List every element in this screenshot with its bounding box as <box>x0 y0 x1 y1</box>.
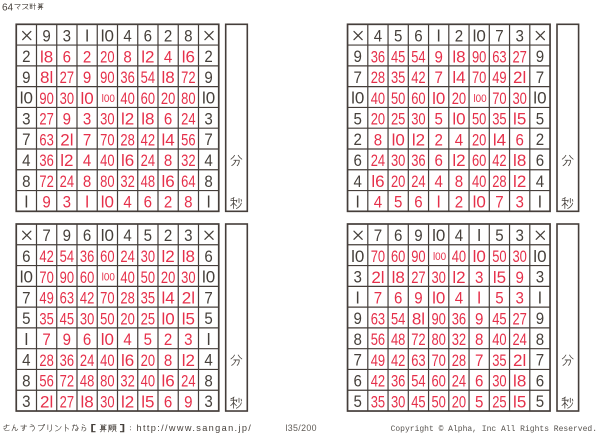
svg-text:63: 63 <box>371 309 385 328</box>
svg-text:7: 7 <box>22 288 30 307</box>
svg-text:27: 27 <box>60 68 74 87</box>
svg-text:35: 35 <box>492 110 506 129</box>
svg-text:50: 50 <box>472 110 486 129</box>
svg-text:9: 9 <box>515 268 523 287</box>
svg-text:63: 63 <box>492 47 506 66</box>
svg-text:4: 4 <box>455 226 463 245</box>
svg-text:35: 35 <box>391 68 405 87</box>
svg-text:l6: l6 <box>162 372 175 391</box>
svg-text:80: 80 <box>181 89 195 108</box>
svg-text:4: 4 <box>22 351 30 370</box>
svg-text:7: 7 <box>536 68 544 87</box>
svg-text:2: 2 <box>164 330 172 349</box>
svg-text:l0: l0 <box>20 89 33 108</box>
svg-text:90: 90 <box>60 268 74 287</box>
svg-text:56: 56 <box>371 330 385 349</box>
svg-text:36: 36 <box>120 68 134 87</box>
svg-text:40: 40 <box>492 330 506 349</box>
svg-text:20: 20 <box>141 351 155 370</box>
svg-text:6: 6 <box>434 151 442 170</box>
svg-text:35: 35 <box>39 309 53 328</box>
svg-text:l0: l0 <box>162 309 175 328</box>
svg-text:40: 40 <box>120 89 134 108</box>
svg-text:20: 20 <box>161 89 175 108</box>
svg-text:8: 8 <box>353 330 361 349</box>
svg-text:50: 50 <box>391 89 405 108</box>
svg-text:28: 28 <box>452 351 466 370</box>
svg-text:70: 70 <box>472 68 486 87</box>
svg-text:l: l <box>24 330 28 349</box>
svg-text:48: 48 <box>391 330 405 349</box>
svg-text:40: 40 <box>371 89 385 108</box>
svg-text:9: 9 <box>184 392 192 411</box>
svg-text:6: 6 <box>515 130 523 149</box>
svg-text:l0: l0 <box>533 89 546 108</box>
svg-text:90: 90 <box>411 247 425 266</box>
svg-text:6: 6 <box>164 392 172 411</box>
svg-text:7: 7 <box>22 130 30 149</box>
svg-text:l0: l0 <box>202 268 215 287</box>
svg-text:4: 4 <box>164 47 172 66</box>
svg-text:4: 4 <box>204 351 212 370</box>
svg-text:3: 3 <box>475 268 483 287</box>
svg-text:l00: l00 <box>473 93 486 105</box>
svg-text:30: 30 <box>411 110 425 129</box>
svg-text:30: 30 <box>492 372 506 391</box>
svg-text:7: 7 <box>42 330 50 349</box>
svg-text:l5: l5 <box>141 392 154 411</box>
svg-text:20: 20 <box>100 47 114 66</box>
svg-text:54: 54 <box>60 247 74 266</box>
svg-text:45: 45 <box>60 309 74 328</box>
svg-text:l0: l0 <box>392 130 405 149</box>
svg-text:5: 5 <box>434 110 442 129</box>
svg-text:49: 49 <box>39 289 53 308</box>
svg-text:30: 30 <box>181 268 195 287</box>
svg-text:20: 20 <box>472 130 486 149</box>
svg-text:35: 35 <box>141 289 155 308</box>
svg-text:l4: l4 <box>452 68 465 87</box>
svg-text:27: 27 <box>512 47 526 66</box>
svg-text:3: 3 <box>536 268 544 287</box>
svg-text:25: 25 <box>141 309 155 328</box>
svg-text:4: 4 <box>123 226 131 245</box>
svg-text:l2: l2 <box>141 47 154 66</box>
svg-text:4: 4 <box>83 151 91 170</box>
svg-text:80: 80 <box>431 330 445 349</box>
svg-text:3: 3 <box>204 109 212 128</box>
svg-text:9: 9 <box>414 289 422 308</box>
svg-text:90: 90 <box>100 68 114 87</box>
svg-text:4: 4 <box>434 172 442 191</box>
svg-text:2: 2 <box>164 226 172 245</box>
svg-text:l6: l6 <box>121 151 134 170</box>
svg-text:l2: l2 <box>182 351 195 370</box>
svg-text:20: 20 <box>452 89 466 108</box>
svg-text:l6: l6 <box>162 172 175 191</box>
svg-text:4: 4 <box>455 130 463 149</box>
svg-text:l4: l4 <box>162 130 175 149</box>
svg-text:5: 5 <box>204 309 212 328</box>
svg-text:28: 28 <box>39 351 53 370</box>
svg-text:l8: l8 <box>392 268 405 287</box>
svg-text:l: l <box>538 193 542 212</box>
svg-text:42: 42 <box>80 289 94 308</box>
svg-text:3: 3 <box>22 392 30 411</box>
svg-text:60: 60 <box>431 372 445 391</box>
svg-text:9: 9 <box>536 47 544 66</box>
svg-text:8: 8 <box>22 371 30 390</box>
svg-text:l0: l0 <box>202 89 215 108</box>
svg-text:70: 70 <box>431 351 445 370</box>
svg-text:5: 5 <box>353 109 361 128</box>
svg-text:42: 42 <box>492 151 506 170</box>
svg-text:l2: l2 <box>452 151 465 170</box>
svg-text:l0: l0 <box>452 110 465 129</box>
svg-text:70: 70 <box>492 89 506 108</box>
svg-text:2: 2 <box>164 26 172 45</box>
svg-text:63: 63 <box>39 130 53 149</box>
svg-text:63: 63 <box>60 289 74 308</box>
svg-text:8: 8 <box>475 330 483 349</box>
svg-text:8: 8 <box>164 351 172 370</box>
svg-text:3: 3 <box>515 289 523 308</box>
svg-text:2l: 2l <box>371 268 384 287</box>
svg-text:l8: l8 <box>81 392 94 411</box>
svg-text:42: 42 <box>391 351 405 370</box>
svg-text:8l: 8l <box>40 68 53 87</box>
svg-text:40: 40 <box>100 151 114 170</box>
svg-text:2: 2 <box>204 47 212 66</box>
svg-text:7: 7 <box>353 351 361 370</box>
svg-text:3: 3 <box>515 193 523 212</box>
svg-text:60: 60 <box>100 247 114 266</box>
svg-text:7: 7 <box>434 68 442 87</box>
svg-text:6: 6 <box>353 151 361 170</box>
svg-text:70: 70 <box>100 289 114 308</box>
svg-text:24: 24 <box>80 351 94 370</box>
svg-text:Copyright © Alpha, Inc All Rig: Copyright © Alpha, Inc All Rights Reserv… <box>391 425 597 434</box>
svg-text:50: 50 <box>431 392 445 411</box>
svg-text:30: 30 <box>100 110 114 129</box>
svg-text:45: 45 <box>411 392 425 411</box>
svg-text:60: 60 <box>80 268 94 287</box>
svg-text:72: 72 <box>181 68 195 87</box>
svg-text:4: 4 <box>204 151 212 170</box>
svg-text:l00: l00 <box>433 251 446 263</box>
svg-text:3: 3 <box>22 109 30 128</box>
svg-text:5: 5 <box>495 226 503 245</box>
svg-text:http://www.sangan.jp/: http://www.sangan.jp/ <box>137 423 253 433</box>
svg-text:6: 6 <box>536 371 544 390</box>
svg-text:42: 42 <box>411 68 425 87</box>
svg-text:9: 9 <box>42 26 50 45</box>
svg-text:27: 27 <box>39 110 53 129</box>
svg-text:20: 20 <box>452 392 466 411</box>
svg-text:l6: l6 <box>182 47 195 66</box>
svg-text:4: 4 <box>123 330 131 349</box>
svg-text:7: 7 <box>204 288 212 307</box>
svg-text:5: 5 <box>394 193 402 212</box>
svg-text:3: 3 <box>63 26 71 45</box>
svg-text:3: 3 <box>63 193 71 212</box>
svg-text:3: 3 <box>83 110 91 129</box>
svg-text:4: 4 <box>123 193 131 212</box>
svg-text:2: 2 <box>455 193 463 212</box>
svg-text:l: l <box>85 26 89 45</box>
svg-text:5: 5 <box>394 26 402 45</box>
svg-text:2l: 2l <box>40 392 53 411</box>
svg-text:7: 7 <box>536 351 544 370</box>
svg-text:3: 3 <box>515 26 523 45</box>
svg-text:4: 4 <box>374 26 382 45</box>
svg-text:30: 30 <box>512 247 526 266</box>
svg-text:9: 9 <box>414 226 422 245</box>
svg-text:l0: l0 <box>351 247 364 266</box>
svg-text:90: 90 <box>39 89 53 108</box>
svg-text:l35/200: l35/200 <box>286 423 317 433</box>
svg-text:54: 54 <box>411 47 425 66</box>
svg-text:4: 4 <box>536 172 544 191</box>
svg-text:l0: l0 <box>473 26 486 45</box>
svg-text:l0: l0 <box>101 193 114 212</box>
svg-text:60: 60 <box>411 89 425 108</box>
svg-text:70: 70 <box>371 247 385 266</box>
svg-text:42: 42 <box>371 372 385 391</box>
svg-text:7: 7 <box>495 193 503 212</box>
svg-text:30: 30 <box>100 392 114 411</box>
svg-text:3: 3 <box>204 392 212 411</box>
svg-text:24: 24 <box>411 172 425 191</box>
svg-text:7: 7 <box>204 130 212 149</box>
svg-text:l8: l8 <box>452 47 465 66</box>
svg-text:l0: l0 <box>351 89 364 108</box>
svg-text:7: 7 <box>495 26 503 45</box>
svg-text:l0: l0 <box>101 226 114 245</box>
svg-text:l5: l5 <box>513 110 526 129</box>
svg-text:l00: l00 <box>102 93 115 105</box>
svg-text:l8: l8 <box>513 372 526 391</box>
svg-text:40: 40 <box>120 268 134 287</box>
svg-text:24: 24 <box>141 151 155 170</box>
svg-text:5: 5 <box>144 226 152 245</box>
svg-text:50: 50 <box>492 247 506 266</box>
svg-text:l0: l0 <box>432 89 445 108</box>
svg-text:48: 48 <box>80 372 94 391</box>
svg-text:40: 40 <box>100 351 114 370</box>
svg-text:5: 5 <box>495 289 503 308</box>
svg-text:l6: l6 <box>371 172 384 191</box>
svg-text:8: 8 <box>455 172 463 191</box>
svg-text:5: 5 <box>144 330 152 349</box>
svg-text:l0: l0 <box>101 330 114 349</box>
svg-text:7: 7 <box>83 130 91 149</box>
svg-text:72: 72 <box>60 372 74 391</box>
svg-text:70: 70 <box>100 130 114 149</box>
svg-text:9: 9 <box>42 193 50 212</box>
svg-text:30: 30 <box>60 89 74 108</box>
svg-text:l0: l0 <box>473 193 486 212</box>
svg-text:50: 50 <box>141 268 155 287</box>
svg-text:6: 6 <box>144 26 152 45</box>
svg-text:56: 56 <box>39 372 53 391</box>
svg-text:2l: 2l <box>182 289 195 308</box>
svg-text:l2: l2 <box>412 130 425 149</box>
svg-text:l: l <box>477 226 481 245</box>
svg-text:l0: l0 <box>432 289 445 308</box>
svg-text:8: 8 <box>536 330 544 349</box>
svg-text:28: 28 <box>492 172 506 191</box>
svg-text:l2: l2 <box>121 392 134 411</box>
svg-text:30: 30 <box>512 89 526 108</box>
svg-text:6: 6 <box>353 371 361 390</box>
svg-text:l: l <box>207 193 211 212</box>
svg-text:42: 42 <box>39 247 53 266</box>
svg-text:24: 24 <box>120 247 134 266</box>
svg-text:4: 4 <box>353 172 361 191</box>
svg-text:2: 2 <box>22 47 30 66</box>
svg-text:64: 64 <box>2 3 14 14</box>
svg-text:25: 25 <box>391 110 405 129</box>
svg-text:36: 36 <box>411 151 425 170</box>
svg-text:6: 6 <box>83 226 91 245</box>
svg-text:6: 6 <box>394 226 402 245</box>
svg-text:20: 20 <box>161 268 175 287</box>
svg-text:6: 6 <box>83 330 91 349</box>
svg-text:l5: l5 <box>493 268 506 287</box>
svg-text:24: 24 <box>371 151 385 170</box>
svg-text:6: 6 <box>414 193 422 212</box>
svg-text:l: l <box>437 26 441 45</box>
svg-text:30: 30 <box>141 247 155 266</box>
svg-text:2l: 2l <box>513 68 526 87</box>
svg-text:8: 8 <box>204 172 212 191</box>
svg-text:7: 7 <box>353 68 361 87</box>
svg-text:7: 7 <box>475 351 483 370</box>
svg-text:20: 20 <box>391 172 405 191</box>
svg-text:24: 24 <box>512 330 526 349</box>
svg-text:6: 6 <box>22 247 30 266</box>
svg-text:54: 54 <box>391 309 405 328</box>
svg-text:l8: l8 <box>182 247 195 266</box>
svg-text:2l: 2l <box>513 351 526 370</box>
svg-text:72: 72 <box>39 172 53 191</box>
svg-text:l: l <box>356 288 360 307</box>
svg-text:24: 24 <box>60 172 74 191</box>
svg-text:9: 9 <box>434 47 442 66</box>
svg-text:9: 9 <box>63 330 71 349</box>
svg-text:6: 6 <box>394 289 402 308</box>
svg-text:l2: l2 <box>121 110 134 129</box>
svg-text:6: 6 <box>204 247 212 266</box>
svg-text:3: 3 <box>184 330 192 349</box>
svg-text:l0: l0 <box>432 226 445 245</box>
svg-text:49: 49 <box>492 68 506 87</box>
svg-text:l4: l4 <box>162 289 175 308</box>
svg-text:9: 9 <box>475 309 483 328</box>
svg-text:36: 36 <box>452 309 466 328</box>
svg-text:45: 45 <box>391 47 405 66</box>
svg-text:64: 64 <box>181 172 195 191</box>
svg-text:90: 90 <box>472 47 486 66</box>
svg-text:4: 4 <box>123 26 131 45</box>
svg-text:32: 32 <box>120 372 134 391</box>
svg-text:72: 72 <box>411 330 425 349</box>
svg-text:4: 4 <box>374 193 382 212</box>
svg-text:l5: l5 <box>513 392 526 411</box>
svg-text:l2: l2 <box>60 151 73 170</box>
svg-text:80: 80 <box>100 172 114 191</box>
svg-text:36: 36 <box>371 47 385 66</box>
svg-text:40: 40 <box>472 172 486 191</box>
svg-text:l2: l2 <box>452 268 465 287</box>
svg-text:35: 35 <box>371 392 385 411</box>
svg-text:l: l <box>538 288 542 307</box>
svg-text:l0: l0 <box>473 247 486 266</box>
svg-text:36: 36 <box>391 372 405 391</box>
svg-text:70: 70 <box>39 268 53 287</box>
svg-text:48: 48 <box>141 172 155 191</box>
svg-text:24: 24 <box>181 110 195 129</box>
svg-text:2: 2 <box>434 130 442 149</box>
svg-text:9: 9 <box>353 47 361 66</box>
svg-text:8: 8 <box>164 151 172 170</box>
svg-text:9: 9 <box>536 309 544 328</box>
svg-text:2: 2 <box>353 130 361 149</box>
svg-text:9: 9 <box>63 226 71 245</box>
svg-text:2: 2 <box>83 47 91 66</box>
svg-text:l2: l2 <box>162 247 175 266</box>
svg-text:9: 9 <box>22 68 30 87</box>
svg-text:32: 32 <box>452 330 466 349</box>
svg-text:7: 7 <box>374 226 382 245</box>
svg-text:5: 5 <box>353 392 361 411</box>
svg-text:60: 60 <box>391 247 405 266</box>
svg-text:90: 90 <box>431 309 445 328</box>
svg-text:9: 9 <box>353 309 361 328</box>
svg-text:8: 8 <box>184 26 192 45</box>
svg-text:45: 45 <box>492 309 506 328</box>
svg-text:3: 3 <box>515 226 523 245</box>
svg-text:6: 6 <box>63 47 71 66</box>
svg-text:6: 6 <box>164 110 172 129</box>
svg-text:3: 3 <box>184 226 192 245</box>
svg-text:20: 20 <box>120 309 134 328</box>
svg-text:28: 28 <box>371 68 385 87</box>
svg-text:l: l <box>85 193 89 212</box>
svg-text:8: 8 <box>374 130 382 149</box>
svg-text:4: 4 <box>22 151 30 170</box>
svg-text:l6: l6 <box>121 351 134 370</box>
svg-text:l8: l8 <box>40 47 53 66</box>
svg-text:35: 35 <box>492 351 506 370</box>
svg-text:28: 28 <box>120 289 134 308</box>
svg-text:36: 36 <box>80 247 94 266</box>
svg-text:60: 60 <box>472 151 486 170</box>
svg-text:6: 6 <box>475 372 483 391</box>
svg-text:l: l <box>207 330 211 349</box>
svg-text:27: 27 <box>411 268 425 287</box>
svg-text:27: 27 <box>512 309 526 328</box>
svg-text:54: 54 <box>141 68 155 87</box>
svg-text:63: 63 <box>411 351 425 370</box>
svg-text:l0: l0 <box>20 268 33 287</box>
svg-text:8l: 8l <box>412 309 425 328</box>
svg-text:l8: l8 <box>162 68 175 87</box>
svg-text:5: 5 <box>536 109 544 128</box>
svg-text:54: 54 <box>411 372 425 391</box>
svg-text:8: 8 <box>204 371 212 390</box>
